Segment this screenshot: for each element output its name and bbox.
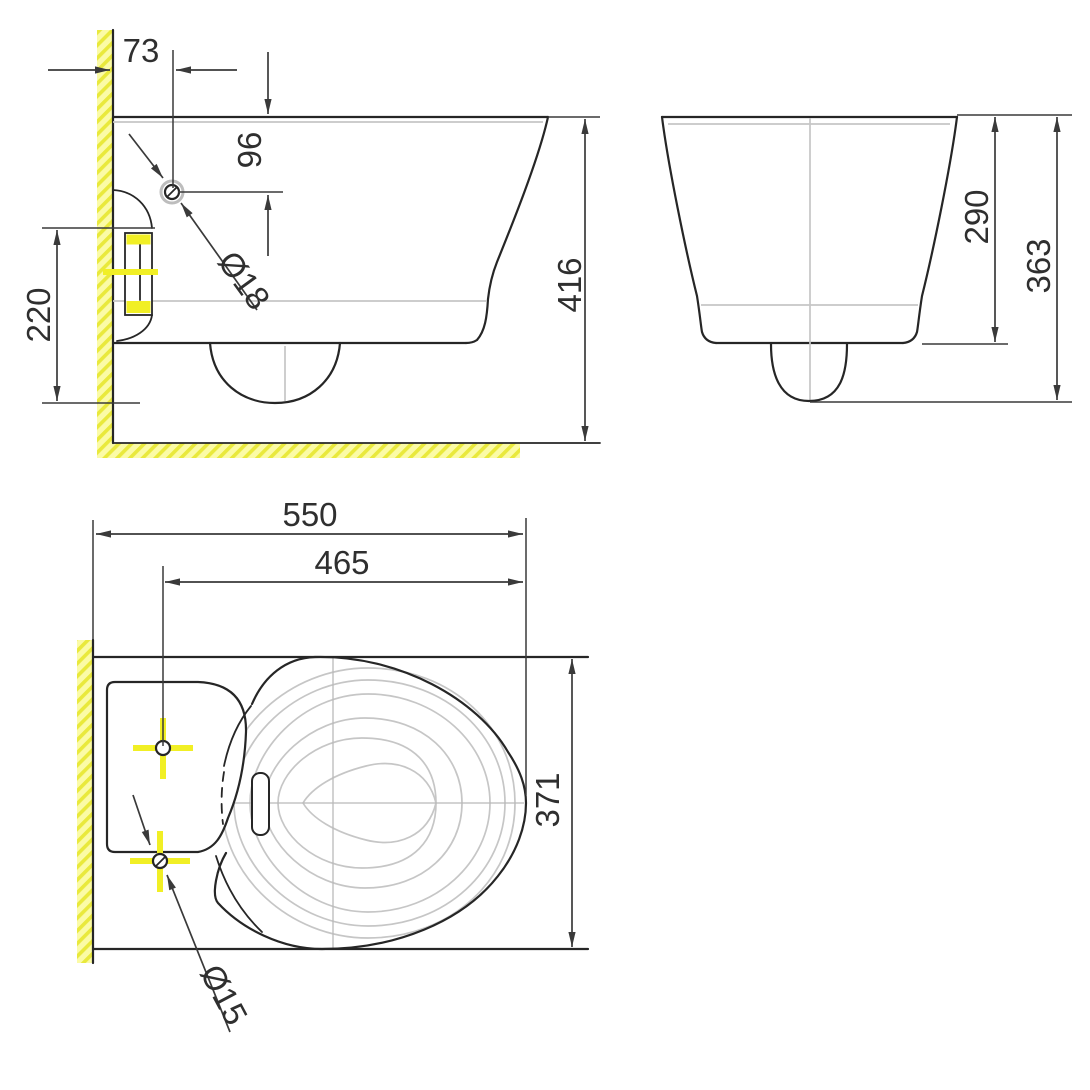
drawing-svg: 73 96 Ø18 220 416 <box>0 0 1090 1090</box>
dim-label-dia15: Ø15 <box>193 958 255 1030</box>
side-trap-outline <box>210 343 340 403</box>
dia18-leader-upper <box>129 134 163 178</box>
bracket-top-arc <box>113 190 152 228</box>
dim-rim-to-floor: 416 <box>548 117 600 441</box>
dim-wall-to-hole: 73 <box>48 32 237 188</box>
front-right-profile <box>903 117 957 343</box>
floor-hatch <box>97 443 520 458</box>
dim-body-height: 290 <box>922 115 1072 344</box>
dim-label-220: 220 <box>20 287 57 342</box>
dim-rim-to-hole: 96 <box>178 52 283 256</box>
dim-label-550: 550 <box>282 496 337 533</box>
bracket-top-highlight <box>127 235 151 245</box>
dim-label-96: 96 <box>231 132 268 169</box>
side-view: 73 96 Ø18 220 416 <box>20 30 600 458</box>
bracket-bottom-highlight <box>127 301 151 313</box>
front-outlet <box>771 344 847 401</box>
dim-label-363: 363 <box>1020 238 1057 293</box>
dim-label-73: 73 <box>123 32 160 69</box>
outlet-spud <box>252 773 269 835</box>
front-view: 290 363 <box>662 115 1072 402</box>
bracket-bottom-arc <box>117 315 152 341</box>
dim-label-416: 416 <box>551 257 588 312</box>
mounting-plate <box>107 682 246 852</box>
dim-label-465: 465 <box>314 544 369 581</box>
dim-label-290: 290 <box>958 189 995 244</box>
technical-drawing-canvas: 73 96 Ø18 220 416 <box>0 0 1090 1090</box>
front-left-profile <box>662 117 716 343</box>
plan-view: 550 465 371 Ø15 <box>77 496 588 1032</box>
wall-hatch <box>97 30 113 443</box>
plan-wall-hatch <box>77 640 93 963</box>
dim-overall-width: 371 <box>529 659 572 947</box>
side-front-profile <box>466 117 548 343</box>
dim-overall-height: 363 <box>810 117 1072 402</box>
dim-label-371: 371 <box>529 772 566 827</box>
